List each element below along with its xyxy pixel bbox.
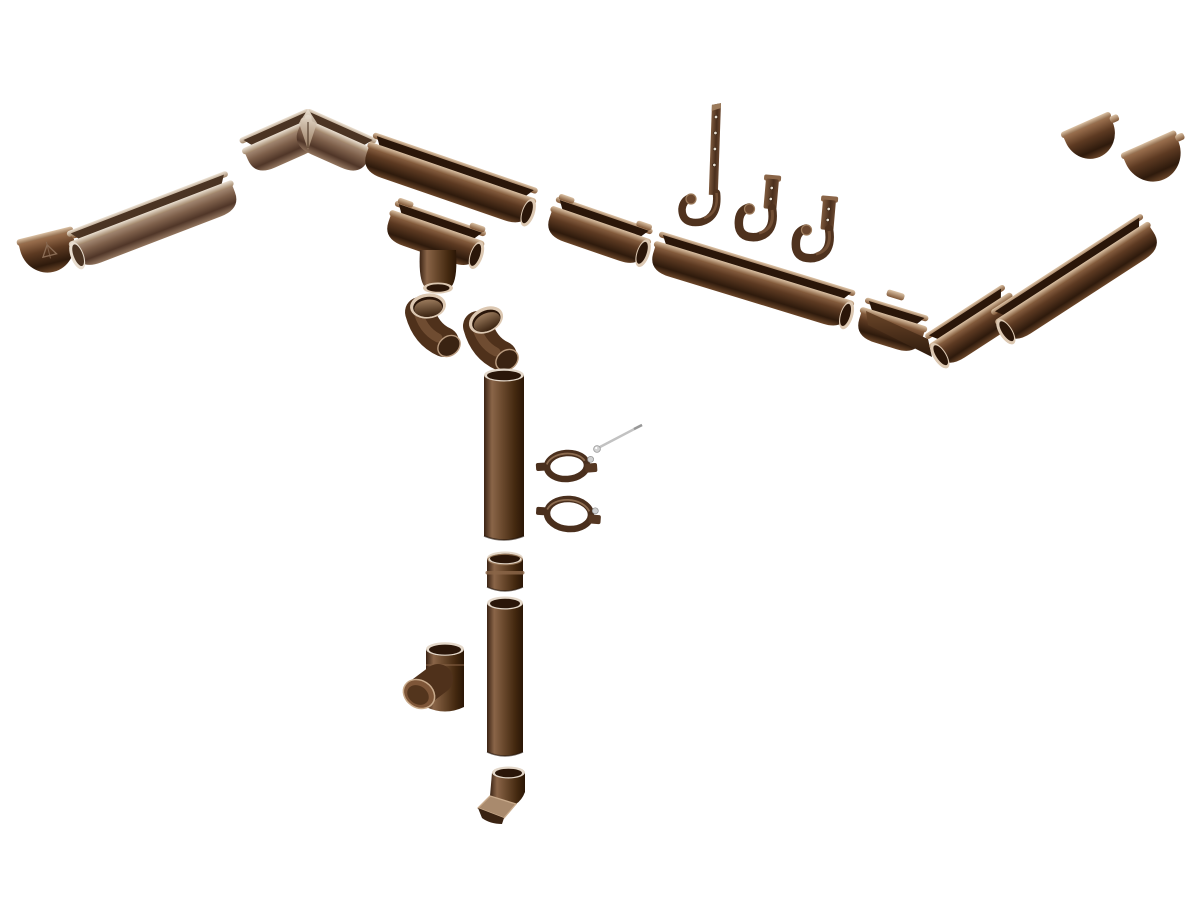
gutter-system-diagram	[0, 0, 1194, 900]
parts-root	[16, 103, 1194, 824]
elbow-lower	[464, 301, 522, 375]
gutter-outlet	[381, 196, 492, 293]
clamp-1	[535, 451, 598, 481]
hook-short-2	[796, 195, 838, 258]
hook-long	[682, 103, 721, 223]
gutter-joiner	[542, 192, 659, 269]
gutter-left-run	[62, 170, 243, 272]
clamp-screw	[594, 425, 642, 452]
tee-branch	[398, 642, 464, 714]
endcap-right-a	[1060, 109, 1130, 168]
gutter-right-run	[986, 212, 1165, 348]
outlet-shoe	[478, 767, 525, 825]
corner-inner-90	[237, 107, 379, 177]
downpipe-lower	[487, 597, 523, 757]
pipe-coupler	[486, 552, 525, 592]
downpipe-upper	[484, 369, 524, 541]
elbow-upper	[409, 292, 465, 361]
diagram-canvas	[0, 0, 1194, 900]
gutter-valley	[359, 131, 543, 229]
clamp-2	[535, 497, 602, 531]
hook-short-1	[739, 174, 781, 237]
endcap-right-b	[1120, 127, 1194, 191]
